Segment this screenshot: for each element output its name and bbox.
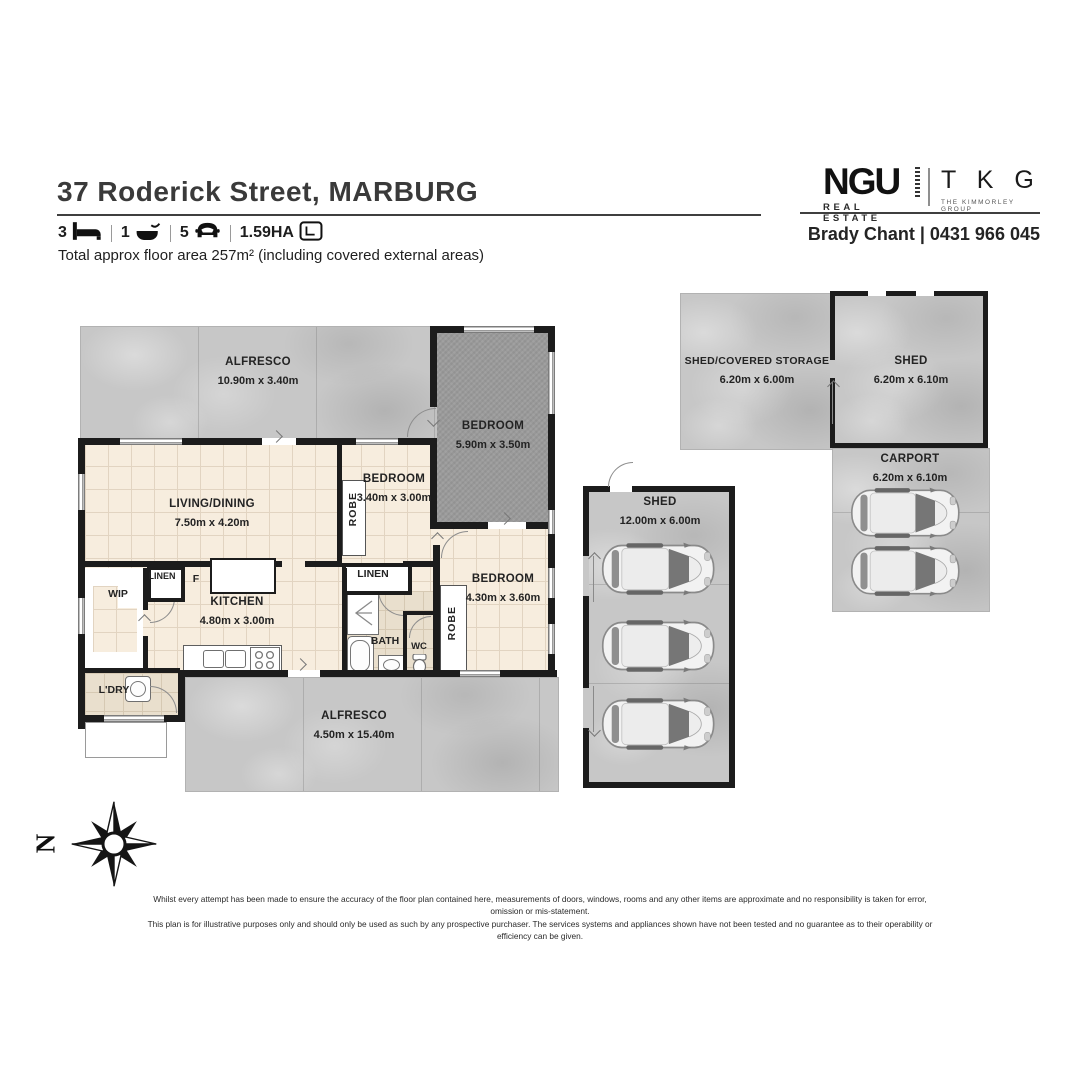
room-label-robe-1: ROBE bbox=[347, 492, 359, 526]
room-label-kitchen: KITCHEN4.80m x 3.00m bbox=[200, 596, 275, 627]
room-label-bedroom-2: BEDROOM3.40m x 3.00m bbox=[357, 473, 432, 504]
ngu-tagline-vertical bbox=[915, 167, 920, 197]
window bbox=[548, 624, 555, 654]
kitchen-island bbox=[210, 558, 276, 594]
tkg-logo-text: T K G bbox=[941, 167, 1046, 195]
bathtub-basin bbox=[350, 640, 370, 672]
room-label-linen-1: LINEN bbox=[149, 571, 176, 581]
window bbox=[548, 352, 555, 414]
car-top-view bbox=[846, 544, 970, 598]
window bbox=[104, 715, 164, 722]
ngu-logo: NGU REAL ESTATE bbox=[823, 163, 923, 224]
room-label-wip: WIP bbox=[108, 588, 128, 600]
disclaimer-line-1: Whilst every attempt has been made to en… bbox=[140, 893, 940, 918]
window bbox=[356, 438, 398, 445]
car-top-view bbox=[598, 541, 724, 597]
room-label-bedroom-main: BEDROOM5.90m x 3.50m bbox=[456, 420, 531, 451]
room-label-shed-ne: SHED 6.20m x 6.10m bbox=[874, 355, 949, 386]
bath-icon bbox=[135, 220, 161, 247]
kitchen-sink bbox=[203, 650, 224, 668]
logo-divider bbox=[928, 168, 930, 206]
compass-rose-icon bbox=[70, 800, 158, 888]
window bbox=[548, 568, 555, 598]
room-label-shed-storage: SHED/COVERED STORAGE 6.20m x 6.00m bbox=[685, 355, 830, 386]
room-label-alfresco-bottom: ALFRESCO4.50m x 15.40m bbox=[314, 710, 395, 741]
room-label-bath: BATH bbox=[371, 635, 399, 647]
car-top-view bbox=[846, 486, 970, 540]
baths-count: 1 bbox=[121, 224, 130, 242]
shower bbox=[347, 592, 379, 635]
car-top-view bbox=[598, 696, 724, 752]
room-label-bedroom-3: BEDROOM4.30m x 3.60m bbox=[466, 573, 541, 604]
car-top-view bbox=[598, 618, 724, 674]
room-label-linen-2: LINEN bbox=[357, 568, 389, 580]
land-area-value: 1.59HA bbox=[240, 224, 294, 242]
bed-icon bbox=[72, 221, 102, 246]
page-title: 37 Roderick Street, MARBURG bbox=[57, 176, 478, 208]
ngu-logo-text: NGU bbox=[823, 163, 923, 200]
room-label-wc: WC bbox=[411, 641, 427, 652]
room-label-fridge: F bbox=[193, 573, 199, 585]
disclaimer-line-2: This plan is for illustrative purposes o… bbox=[140, 918, 940, 943]
laundry-tub-bowl bbox=[130, 681, 146, 697]
cars-count: 5 bbox=[180, 224, 189, 242]
room-label-laundry: L'DRY bbox=[99, 684, 130, 696]
agent-contact: Brady Chant | 0431 966 045 bbox=[740, 224, 1040, 245]
room-label-robe-2: ROBE bbox=[446, 606, 458, 640]
brand-divider bbox=[800, 212, 1040, 214]
window bbox=[78, 598, 85, 634]
door-swing bbox=[608, 462, 633, 487]
window bbox=[548, 510, 555, 534]
window bbox=[120, 438, 182, 445]
tkg-logo: T K G THE KIMMORLEY GROUP bbox=[941, 167, 1046, 213]
stats-separator bbox=[170, 225, 171, 242]
kitchen-sink bbox=[225, 650, 246, 668]
room-label-alfresco-top: ALFRESCO10.90m x 3.40m bbox=[218, 356, 299, 387]
stats-separator bbox=[230, 225, 231, 242]
title-divider bbox=[57, 214, 761, 216]
room-label-shed-w: SHED 12.00m x 6.00m bbox=[620, 496, 701, 527]
disclaimer-text: Whilst every attempt has been made to en… bbox=[140, 893, 940, 943]
property-stats: 3 1 5 1.59HA bbox=[58, 221, 323, 245]
window bbox=[460, 670, 500, 677]
beds-count: 3 bbox=[58, 224, 67, 242]
car-icon bbox=[194, 220, 221, 246]
window bbox=[464, 326, 534, 333]
floor-area-note: Total approx floor area 257m² (including… bbox=[58, 247, 484, 264]
room-label-living: LIVING/DINING7.50m x 4.20m bbox=[169, 498, 255, 529]
porch-step bbox=[85, 722, 167, 758]
floorplan-page: 37 Roderick Street, MARBURG 3 1 5 1.59HA… bbox=[0, 0, 1080, 1080]
room-label-carport: CARPORT 6.20m x 6.10m bbox=[873, 453, 948, 484]
land-area-icon bbox=[299, 221, 323, 246]
compass-north-label: N bbox=[30, 834, 61, 854]
window bbox=[78, 474, 85, 510]
stats-separator bbox=[111, 225, 112, 242]
tkg-logo-subtext: THE KIMMORLEY GROUP bbox=[941, 199, 1046, 213]
